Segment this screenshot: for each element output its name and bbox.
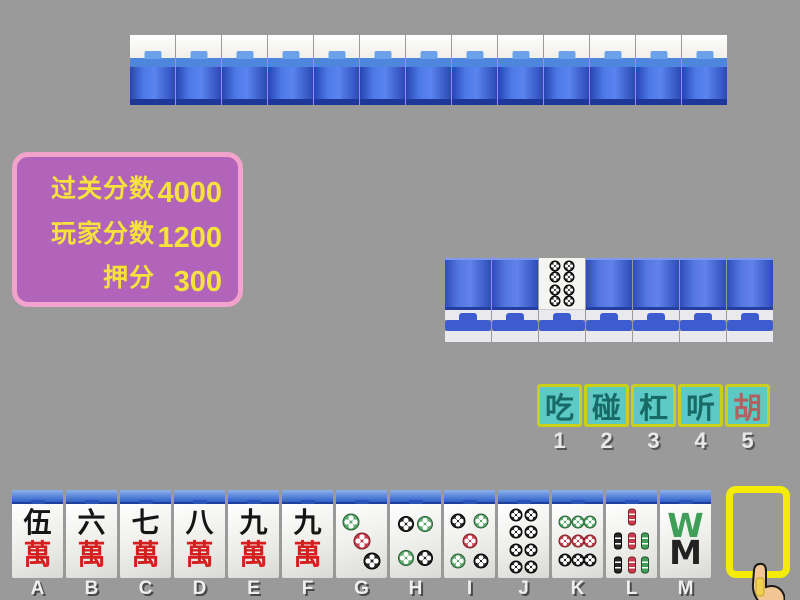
dot-pip <box>525 526 538 539</box>
tile-edge <box>222 58 267 67</box>
man-wan-character: 萬 <box>23 541 51 569</box>
dot-pip <box>363 552 380 569</box>
hand-tile-8-dots[interactable] <box>498 490 549 578</box>
tile-top-face <box>406 35 451 58</box>
tile-base <box>682 99 727 105</box>
dot-pip <box>550 272 561 283</box>
tile-letter-A: A <box>12 578 63 600</box>
tile-top-edge <box>282 490 333 504</box>
tile-top-edge <box>336 490 387 504</box>
man-number-character: 伍 <box>23 509 51 537</box>
dot-pip <box>473 514 488 529</box>
tile-top-face <box>268 35 313 58</box>
man-number-character: 九 <box>293 509 321 537</box>
tile-stripe <box>633 320 679 331</box>
dot-pip <box>563 284 574 295</box>
tile-stripe <box>492 320 538 331</box>
bamboo-m-shape: M <box>669 539 702 566</box>
pass-score-row: 过关分数 4000 <box>27 169 226 205</box>
tile-top-face <box>498 35 543 58</box>
tile-face: WM <box>660 504 711 578</box>
opponent-tile-back <box>314 35 359 105</box>
tile-letter-J: J <box>498 578 549 600</box>
bamboo-stick <box>628 508 636 525</box>
man-number-character: 七 <box>131 509 159 537</box>
tile-letter-B: B <box>66 578 117 600</box>
hand-tile-8-man[interactable]: 八萬 <box>174 490 225 578</box>
tile-face <box>539 258 585 310</box>
dot-pip <box>509 543 522 556</box>
dot-pip <box>550 284 561 295</box>
tile-letter-D: D <box>174 578 225 600</box>
tile-edge <box>544 58 589 67</box>
opponent-tile-back <box>176 35 221 105</box>
man-wan-character: 萬 <box>239 541 267 569</box>
hand-tile-7-bamboo[interactable] <box>606 490 657 578</box>
tile-edge <box>360 58 405 67</box>
dot-pip <box>583 535 596 548</box>
dot-pip <box>343 513 360 530</box>
tile-base <box>590 99 635 105</box>
dot-pip <box>451 514 466 529</box>
tile-back-face <box>406 67 451 99</box>
tile-top-edge <box>12 490 63 504</box>
tile-top-edge <box>390 490 441 504</box>
tile-edge <box>452 58 497 67</box>
man-wan-character: 萬 <box>185 541 213 569</box>
tile-stripe <box>539 320 585 331</box>
tile-back-face <box>544 67 589 99</box>
wall-tile-back <box>633 258 679 345</box>
tile-base <box>636 99 681 105</box>
dot-pip <box>525 543 538 556</box>
player-score-value: 1200 <box>155 222 226 255</box>
dot-pip <box>550 296 561 307</box>
opponent-tile-back <box>130 35 175 105</box>
tile-edge <box>176 58 221 67</box>
bamboo-stick <box>641 557 649 574</box>
player-hand-row: 伍萬六萬七萬八萬九萬九萬WM <box>12 490 711 578</box>
opponent-hand-row <box>130 35 727 105</box>
wall-tile-back <box>680 258 726 345</box>
dot-pip <box>559 515 572 528</box>
tile-back-face <box>727 258 773 310</box>
tile-stripe <box>586 320 632 331</box>
tile-edge <box>590 58 635 67</box>
hand-tile-5-man[interactable]: 伍萬 <box>12 490 63 578</box>
hand-tile-9-man[interactable]: 九萬 <box>228 490 279 578</box>
bamboo-stick <box>628 533 636 550</box>
bet-score-row: 押分 300 <box>27 258 226 294</box>
tile-stripe <box>539 310 585 320</box>
wall-tile-face-up-8-dots <box>539 258 585 345</box>
tile-top-edge <box>228 490 279 504</box>
dot-pip <box>563 296 574 307</box>
hotkey-label-5: 5 <box>725 428 770 454</box>
tile-face: 九萬 <box>282 504 333 578</box>
tile-top-edge <box>120 490 171 504</box>
opponent-tile-back <box>636 35 681 105</box>
dot-pip <box>451 553 466 568</box>
man-number-character: 六 <box>77 509 105 537</box>
hand-tile-3-dots[interactable] <box>336 490 387 578</box>
tile-base <box>176 99 221 105</box>
dot-pip <box>398 550 414 566</box>
tile-stripe <box>680 310 726 320</box>
tile-back-face <box>176 67 221 99</box>
action-button-bar: 吃碰杠听胡 <box>537 384 770 427</box>
opponent-tile-back <box>498 35 543 105</box>
tile-top-face <box>636 35 681 58</box>
tile-back-face <box>498 67 543 99</box>
tile-stripe <box>680 320 726 331</box>
dot-pip <box>571 554 584 567</box>
tile-edge <box>682 58 727 67</box>
dot-pip <box>563 272 574 283</box>
pass-score-label: 过关分数 <box>27 169 155 205</box>
hotkey-label-2: 2 <box>584 428 629 454</box>
tile-stripe <box>445 310 491 320</box>
tile-stripe <box>539 331 585 342</box>
hotkey-label-3: 3 <box>631 428 676 454</box>
opponent-tile-back <box>360 35 405 105</box>
tile-letter-G: G <box>336 578 387 600</box>
man-number-character: 八 <box>185 509 213 537</box>
tile-face: 六萬 <box>66 504 117 578</box>
tile-face: 七萬 <box>120 504 171 578</box>
tile-top-edge <box>174 490 225 504</box>
dot-pip <box>550 260 561 271</box>
hand-tile-4-dots[interactable] <box>390 490 441 578</box>
bet-score-value: 300 <box>155 266 226 299</box>
dot-pip <box>509 560 522 573</box>
dot-pip <box>559 535 572 548</box>
dot-pip <box>353 533 370 550</box>
man-wan-character: 萬 <box>77 541 105 569</box>
tile-face: 伍萬 <box>12 504 63 578</box>
tile-top-face <box>452 35 497 58</box>
tile-face: 九萬 <box>228 504 279 578</box>
mahjong-game-screen: 过关分数 4000 玩家分数 1200 押分 300 吃碰杠听胡 12345 伍… <box>0 0 800 600</box>
hand-letter-row: ABCDEFGHIJKLM <box>12 578 711 600</box>
tile-back-face <box>590 67 635 99</box>
tile-face <box>444 504 495 578</box>
hand-tile-9-dots[interactable] <box>552 490 603 578</box>
dot-pip <box>398 516 414 532</box>
dot-pip <box>509 509 522 522</box>
bamboo-stick <box>641 533 649 550</box>
tile-top-face <box>590 35 635 58</box>
tile-letter-K: K <box>552 578 603 600</box>
opponent-tile-back <box>268 35 313 105</box>
tile-top-edge <box>606 490 657 504</box>
pointing-hand-cursor <box>737 562 785 600</box>
tile-top-face <box>360 35 405 58</box>
pass-score-value: 4000 <box>155 177 226 210</box>
tile-top-edge <box>552 490 603 504</box>
tile-stripe <box>633 331 679 342</box>
hand-tile-5-dots[interactable] <box>444 490 495 578</box>
tile-edge <box>498 58 543 67</box>
tile-stripe <box>445 320 491 331</box>
action-button-2[interactable]: 碰 <box>584 384 629 427</box>
tile-base <box>130 99 175 105</box>
tile-back-face <box>452 67 497 99</box>
opponent-tile-back <box>590 35 635 105</box>
tile-top-face <box>682 35 727 58</box>
dot-pip <box>583 515 596 528</box>
tile-back-face <box>586 258 632 310</box>
bamboo-8-glyphs: WM <box>667 512 703 566</box>
tile-base <box>544 99 589 105</box>
opponent-tile-back <box>544 35 589 105</box>
tile-back-face <box>636 67 681 99</box>
tile-top-edge <box>444 490 495 504</box>
tile-back-face <box>492 258 538 310</box>
opponent-tile-back <box>406 35 451 105</box>
tile-top-edge <box>660 490 711 504</box>
opponent-tile-back <box>222 35 267 105</box>
tile-edge <box>130 58 175 67</box>
tile-edge <box>406 58 451 67</box>
tile-stripe <box>445 331 491 342</box>
tile-back-face <box>682 67 727 99</box>
wall-tile-back <box>445 258 491 345</box>
tile-face <box>336 504 387 578</box>
tile-face: 八萬 <box>174 504 225 578</box>
tile-letter-I: I <box>444 578 495 600</box>
tile-edge <box>268 58 313 67</box>
pointing-finger-icon <box>737 562 785 600</box>
tile-back-face <box>680 258 726 310</box>
tile-stripe <box>586 331 632 342</box>
hand-tile-6-man[interactable]: 六萬 <box>66 490 117 578</box>
tile-back-face <box>633 258 679 310</box>
side-wall-row <box>445 258 773 345</box>
tile-base <box>268 99 313 105</box>
tile-stripe <box>727 320 773 331</box>
man-wan-character: 萬 <box>131 541 159 569</box>
dot-pip <box>571 535 584 548</box>
tile-face <box>552 504 603 578</box>
bamboo-stick <box>614 533 622 550</box>
tile-stripe <box>492 331 538 342</box>
man-wan-character: 萬 <box>293 541 321 569</box>
tile-letter-C: C <box>120 578 171 600</box>
dot-pip <box>462 534 477 549</box>
bamboo-stick <box>628 557 636 574</box>
hand-tile-9-man[interactable]: 九萬 <box>282 490 333 578</box>
tile-letter-H: H <box>390 578 441 600</box>
dot-pip <box>563 260 574 271</box>
tile-back-face <box>268 67 313 99</box>
hand-tile-7-man[interactable]: 七萬 <box>120 490 171 578</box>
opponent-tile-back <box>682 35 727 105</box>
tile-edge <box>636 58 681 67</box>
dot-pip <box>417 550 433 566</box>
tile-face <box>606 504 657 578</box>
tile-face <box>390 504 441 578</box>
tile-base <box>314 99 359 105</box>
action-hotkey-row: 12345 <box>537 428 770 454</box>
hand-tile-8-bamboo[interactable]: WM <box>660 490 711 578</box>
tile-top-face <box>314 35 359 58</box>
tile-stripe <box>586 310 632 320</box>
tile-stripe <box>680 331 726 342</box>
bamboo-stick <box>614 557 622 574</box>
dot-pip <box>525 509 538 522</box>
tile-letter-M: M <box>660 578 711 600</box>
tile-base <box>222 99 267 105</box>
tile-stripe <box>492 310 538 320</box>
wall-tile-back <box>727 258 773 345</box>
tile-back-face <box>360 67 405 99</box>
man-number-character: 九 <box>239 509 267 537</box>
tile-edge <box>314 58 359 67</box>
action-button-4[interactable]: 听 <box>678 384 723 427</box>
tile-top-face <box>544 35 589 58</box>
hotkey-label-4: 4 <box>678 428 723 454</box>
tile-base <box>360 99 405 105</box>
tile-back-face <box>130 67 175 99</box>
tile-back-face <box>445 258 491 310</box>
dot-pip <box>559 554 572 567</box>
tile-top-face <box>222 35 267 58</box>
dot-pip <box>473 553 488 568</box>
tile-letter-L: L <box>606 578 657 600</box>
tile-top-edge <box>498 490 549 504</box>
dot-pip <box>571 515 584 528</box>
dot-pip <box>509 526 522 539</box>
tile-top-face <box>176 35 221 58</box>
tile-letter-E: E <box>228 578 279 600</box>
tile-stripe <box>727 310 773 320</box>
action-button-1[interactable]: 吃 <box>537 384 582 427</box>
action-button-5[interactable]: 胡 <box>725 384 770 427</box>
bet-score-label: 押分 <box>27 258 155 294</box>
player-score-label: 玩家分数 <box>27 214 155 250</box>
tile-top-edge <box>66 490 117 504</box>
dot-pip <box>417 516 433 532</box>
opponent-tile-back <box>452 35 497 105</box>
tile-stripe <box>633 310 679 320</box>
tile-letter-F: F <box>282 578 333 600</box>
tile-base <box>498 99 543 105</box>
dot-pip <box>525 560 538 573</box>
tile-top-face <box>130 35 175 58</box>
dot-pip <box>583 554 596 567</box>
wall-tile-back <box>586 258 632 345</box>
wall-tile-back <box>492 258 538 345</box>
hotkey-label-1: 1 <box>537 428 582 454</box>
tile-stripe <box>727 331 773 342</box>
tile-back-face <box>314 67 359 99</box>
tile-back-face <box>222 67 267 99</box>
player-score-row: 玩家分数 1200 <box>27 214 226 250</box>
action-button-3[interactable]: 杠 <box>631 384 676 427</box>
tile-base <box>452 99 497 105</box>
tile-face <box>498 504 549 578</box>
tile-base <box>406 99 451 105</box>
score-panel: 过关分数 4000 玩家分数 1200 押分 300 <box>12 152 243 307</box>
